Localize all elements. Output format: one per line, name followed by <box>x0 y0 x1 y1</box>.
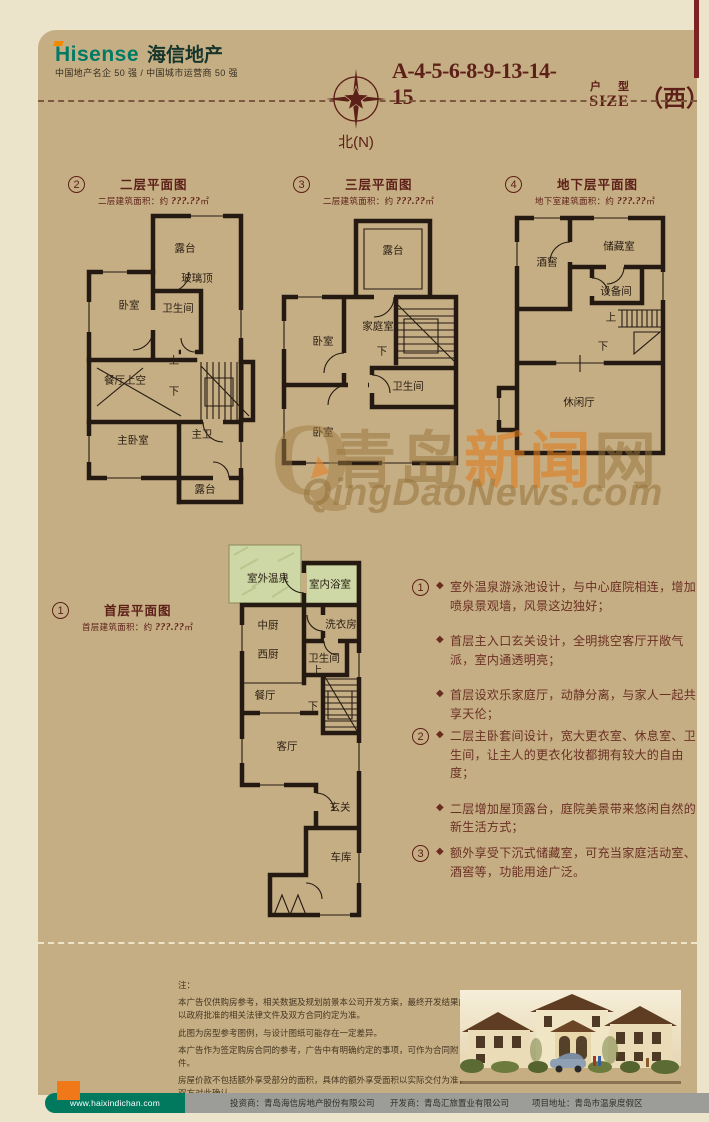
room-label-living: 客厅 <box>277 739 298 754</box>
feature-item: ◆二层主卧套间设计，宽大更衣室、休息室、卫生间，让主人的更衣化妆都拥有较大的自由… <box>436 727 704 783</box>
plan2-area: 二层建筑面积：约 ???.??㎡ <box>68 195 278 207</box>
plan2-number-badge: 2 <box>68 176 85 193</box>
room-label-bedroom: 卧室 <box>313 334 334 349</box>
diamond-bullet-icon: ◆ <box>436 729 450 783</box>
room-label-storage: 储藏室 <box>603 239 635 254</box>
brand-accent-icon <box>53 41 64 46</box>
compass-icon <box>325 68 387 130</box>
page-title: A-4-5-6-8-9-13-14-15 户 型 SIZE （西） <box>392 58 709 110</box>
feature-group-1: 1 ◆室外温泉游泳池设计，与中心庭院相连，增加喷泉景观墙，风景这边独好； ◆首层… <box>412 578 704 741</box>
disclaimer-line: 本广告作为签定购房合同的参考，广告中有明确约定的事项，可作为合同附件。 <box>178 1044 470 1070</box>
room-label-terrace: 露台 <box>195 482 216 497</box>
room-label-stairs-down: 下 <box>598 339 609 354</box>
diamond-bullet-icon: ◆ <box>436 580 450 615</box>
room-label-dining: 餐厅 <box>255 688 276 703</box>
brand-logo-cn: 海信地产 <box>147 45 223 66</box>
plan1-number-badge: 1 <box>52 602 69 619</box>
dashed-divider-bottom <box>38 942 697 944</box>
floorplan-basement: 酒窖 储藏室 设备间 上 下 休闲厅 <box>494 214 666 464</box>
page: Hisense海信地产 中国地产名企 50 强 / 中国城市运营商 50 强 A… <box>0 0 709 1122</box>
footer-developer: 开发商：青岛汇旅置业有限公司 <box>390 1093 509 1113</box>
brand-logo-en: Hisense <box>55 43 139 66</box>
title-type: 户 型 SIZE <box>583 78 636 110</box>
brand-tagline: 中国地产名企 50 强 / 中国城市运营商 50 强 <box>55 66 238 79</box>
disclaimer-title: 注： <box>178 979 470 992</box>
feature-group-2: 2 ◆二层主卧套间设计，宽大更衣室、休息室、卫生间，让主人的更衣化妆都拥有较大的… <box>412 727 704 854</box>
brand-logo: Hisense海信地产 <box>55 40 223 67</box>
diamond-bullet-icon: ◆ <box>436 634 450 669</box>
room-label-equipment: 设备间 <box>600 284 632 299</box>
disclaimer: 注： 本广告仅供购房参考，相关数据及规划前景本公司开发方案，最终开发结果应以政府… <box>178 979 470 1104</box>
room-label-bedroom: 卧室 <box>119 298 140 313</box>
footer-address: 项目地址：青岛市温泉度假区 <box>532 1093 643 1113</box>
floorplan-third-floor-drawing <box>278 213 463 478</box>
plan3-title: 三层平面图 <box>293 174 503 193</box>
feature-group-3: 3 ◆额外享受下沉式储藏室，可充当家庭活动室、酒窖等，功能用途广泛。 <box>412 844 704 898</box>
footer-investor: 投资商：青岛海信房地产股份有限公司 <box>230 1093 375 1113</box>
feature-group-2-badge: 2 <box>412 728 429 745</box>
title-type-cn: 户 型 <box>583 78 636 94</box>
disclaimer-line: 此图为房型参考图例，与设计图纸可能存在一定差异。 <box>178 1027 470 1040</box>
floorplan-ground-floor: 室外温泉 室内浴室 中厨 西厨 洗衣房 卫生间 餐厅 上 下 客厅 玄关 车库 <box>220 543 395 948</box>
room-label-stairs-up: 上 <box>312 663 323 678</box>
room-label-bedroom: 卧室 <box>313 425 334 440</box>
diamond-bullet-icon: ◆ <box>436 802 450 837</box>
plan3-number-badge: 3 <box>293 176 310 193</box>
plan2-label: 2 二层平面图 二层建筑面积：约 ???.??㎡ <box>68 174 278 207</box>
room-label-stairs-down: 下 <box>169 384 180 399</box>
compass-label: 北(N) <box>318 131 394 152</box>
diamond-bullet-icon: ◆ <box>436 688 450 723</box>
feature-item: ◆二层增加屋顶露台，庭院美景带来悠闲自然的新生活方式； <box>436 800 704 837</box>
room-label-leisure-hall: 休闲厅 <box>563 395 595 410</box>
plan4-number-badge: 4 <box>505 176 522 193</box>
disclaimer-line: 本广告仅供购房参考，相关数据及规划前景本公司开发方案，最终开发结果应以政府批准的… <box>178 996 470 1022</box>
floorplan-basement-drawing <box>494 214 666 464</box>
room-label-glass-roof: 玻璃顶 <box>181 271 213 286</box>
feature-group-1-badge: 1 <box>412 579 429 596</box>
room-label-family-room: 家庭室 <box>362 319 394 334</box>
room-label-indoor-bath: 室内浴室 <box>309 577 351 592</box>
room-label-chinese-kitchen: 中厨 <box>258 618 279 633</box>
title-orientation: （西） <box>640 87 709 110</box>
feature-item: ◆额外享受下沉式储藏室，可充当家庭活动室、酒窖等，功能用途广泛。 <box>436 844 704 881</box>
building-photo <box>460 990 681 1081</box>
room-label-bathroom: 卫生间 <box>392 379 424 394</box>
room-label-stairs-down: 下 <box>377 344 388 359</box>
feature-group-3-badge: 3 <box>412 845 429 862</box>
title-unit-codes: A-4-5-6-8-9-13-14-15 <box>392 58 576 110</box>
room-label-terrace: 露台 <box>383 243 404 258</box>
room-label-wine-cellar: 酒窖 <box>537 255 558 270</box>
room-label-master-bath: 主卫 <box>192 427 213 442</box>
room-label-dining-void: 餐厅上空 <box>104 373 146 388</box>
footer-url: www.haixindichan.com <box>70 1098 160 1108</box>
room-label-stairs-up: 上 <box>606 310 617 325</box>
plan4-title: 地下层平面图 <box>505 174 709 193</box>
feature-item: ◆首层设欢乐家庭厅，动静分离，与家人一起共享天伦； <box>436 686 704 723</box>
floorplan-ground-floor-drawing <box>220 543 395 948</box>
feature-item: ◆首层主入口玄关设计，全明挑空客厅开敞气派，室内通透明亮； <box>436 632 704 669</box>
photo-shadow <box>460 1081 681 1084</box>
room-label-stairs-up: 上 <box>169 353 180 368</box>
room-label-western-kitchen: 西厨 <box>258 647 279 662</box>
diamond-bullet-icon: ◆ <box>436 846 450 881</box>
footer-orange-mark <box>57 1081 80 1100</box>
plan4-label: 4 地下层平面图 地下室建筑面积：约 ???.??㎡ <box>505 174 709 207</box>
plan3-area: 二层建筑面积：约 ???.??㎡ <box>293 195 503 207</box>
room-label-terrace: 露台 <box>175 241 196 256</box>
room-label-garage: 车库 <box>331 850 352 865</box>
room-label-master-bedroom: 主卧室 <box>117 433 149 448</box>
plan2-title: 二层平面图 <box>68 174 278 193</box>
room-label-foyer: 玄关 <box>330 800 351 815</box>
plan4-area: 地下室建筑面积：约 ???.??㎡ <box>505 195 709 207</box>
floorplan-second-floor: 露台 玻璃顶 卧室 卫生间 餐厅上空 上 下 主卧室 主卫 露台 <box>83 210 258 505</box>
plan3-label: 3 三层平面图 二层建筑面积：约 ???.??㎡ <box>293 174 503 207</box>
room-label-stairs-down: 下 <box>308 699 319 714</box>
room-label-outdoor-spring: 室外温泉 <box>247 571 289 586</box>
room-label-bathroom: 卫生间 <box>162 301 194 316</box>
room-label-laundry: 洗衣房 <box>325 617 357 632</box>
title-type-en: SIZE <box>589 94 629 110</box>
feature-item: ◆室外温泉游泳池设计，与中心庭院相连，增加喷泉景观墙，风景这边独好； <box>436 578 704 615</box>
floorplan-third-floor: 露台 家庭室 卧室 下 卫生间 卧室 <box>278 213 463 478</box>
